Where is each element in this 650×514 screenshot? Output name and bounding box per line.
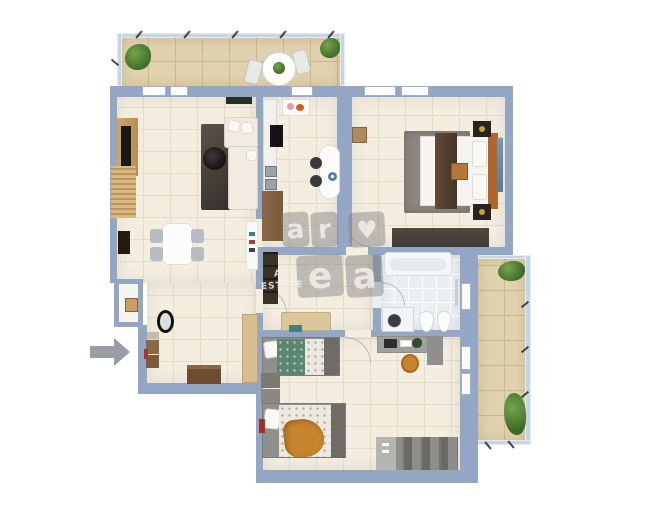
watermark-block: a bbox=[345, 254, 384, 298]
dining-chair bbox=[191, 229, 204, 243]
bed-footboard bbox=[331, 404, 345, 458]
coffee-table bbox=[203, 147, 226, 170]
wall-shelf bbox=[147, 332, 159, 339]
cooktop bbox=[270, 125, 283, 147]
window bbox=[461, 373, 471, 395]
potted-plant bbox=[125, 44, 151, 70]
wall-tv bbox=[118, 231, 130, 254]
washing-machine bbox=[382, 307, 414, 332]
window bbox=[461, 346, 471, 370]
potted-plant bbox=[504, 393, 526, 435]
dresser bbox=[352, 127, 367, 143]
watermark-block: a bbox=[281, 211, 310, 247]
sofa-pillow bbox=[240, 121, 254, 135]
bed-tray bbox=[451, 163, 468, 180]
top-balcony-railing-right bbox=[340, 33, 345, 86]
bowl bbox=[296, 104, 304, 111]
bar-stool bbox=[310, 175, 322, 187]
laptop bbox=[384, 339, 397, 348]
wall-hall-bottom bbox=[138, 383, 263, 394]
kids-duvet-white bbox=[305, 339, 324, 375]
nightstand-lamp bbox=[479, 209, 485, 215]
bathtub-basin bbox=[390, 258, 446, 271]
closet-box bbox=[125, 298, 138, 312]
desk-papers bbox=[400, 340, 412, 347]
towel-rail bbox=[455, 279, 458, 306]
storage-box bbox=[187, 365, 221, 384]
window bbox=[461, 283, 471, 310]
arrow-body bbox=[90, 346, 114, 358]
tv-shelf bbox=[226, 97, 252, 104]
bed-pillow bbox=[472, 141, 487, 167]
window bbox=[291, 86, 313, 96]
table-plant bbox=[273, 62, 285, 74]
arrow-head bbox=[114, 338, 130, 366]
door-gap-kids bbox=[345, 330, 371, 337]
vase bbox=[287, 103, 294, 110]
watermark-block: r bbox=[310, 211, 339, 247]
wall-art bbox=[497, 138, 503, 192]
outer-wall-bottom bbox=[256, 470, 478, 483]
door-gap-bedroom bbox=[346, 247, 368, 255]
hall-wardrobe bbox=[242, 314, 258, 383]
kitchen-sink bbox=[265, 166, 277, 177]
desk-return bbox=[427, 336, 443, 365]
towel bbox=[289, 325, 302, 332]
wardrobe-handle bbox=[382, 450, 389, 453]
slat-bench bbox=[111, 166, 136, 218]
window bbox=[142, 86, 166, 96]
dining-chair bbox=[150, 229, 163, 243]
window bbox=[364, 86, 396, 96]
kids-duvet-green bbox=[277, 339, 305, 375]
shelf-item bbox=[249, 240, 255, 244]
potted-plant bbox=[320, 38, 340, 58]
window bbox=[170, 86, 188, 96]
potted-plant bbox=[498, 261, 525, 281]
bookshelf bbox=[246, 221, 258, 270]
outer-wall-right-upper bbox=[505, 86, 513, 255]
shelf-item bbox=[249, 248, 255, 252]
double-bed bbox=[420, 133, 498, 209]
sofa-pillow bbox=[227, 119, 241, 133]
shelf-item bbox=[249, 232, 255, 236]
bed-footboard bbox=[324, 338, 339, 375]
bar-stool bbox=[310, 157, 322, 169]
kids-nightstand bbox=[261, 389, 280, 403]
watermark-heart-icon: ♥ bbox=[348, 211, 386, 248]
sofa-pillow bbox=[245, 149, 257, 161]
entrance-arrow bbox=[90, 338, 132, 366]
kids-wardrobe bbox=[376, 437, 458, 470]
door-gap-dressing bbox=[256, 289, 263, 313]
wardrobe-handle bbox=[382, 443, 389, 446]
dining-table bbox=[162, 223, 193, 265]
kids-nightstand bbox=[261, 373, 280, 388]
window bbox=[401, 86, 429, 96]
dining-chair bbox=[191, 247, 204, 261]
dining-chair bbox=[150, 247, 163, 261]
bed-pillow bbox=[472, 174, 487, 200]
kitchen-sink bbox=[265, 179, 277, 190]
vase-red bbox=[144, 349, 148, 359]
nightstand-lamp bbox=[479, 126, 485, 132]
watermark-block: e bbox=[296, 254, 344, 298]
floor-plan-canvas: a r ♥ e a AL ESTATE bbox=[0, 0, 650, 514]
mirror bbox=[157, 310, 174, 333]
bedroom-bench bbox=[392, 228, 489, 247]
books bbox=[259, 419, 265, 433]
desk-plant bbox=[412, 338, 422, 348]
plate bbox=[328, 172, 337, 181]
desk-chair bbox=[401, 354, 419, 373]
kitchen-counter bbox=[262, 191, 283, 241]
watermark-caption: AL bbox=[274, 269, 289, 280]
wall-tv bbox=[121, 126, 131, 170]
